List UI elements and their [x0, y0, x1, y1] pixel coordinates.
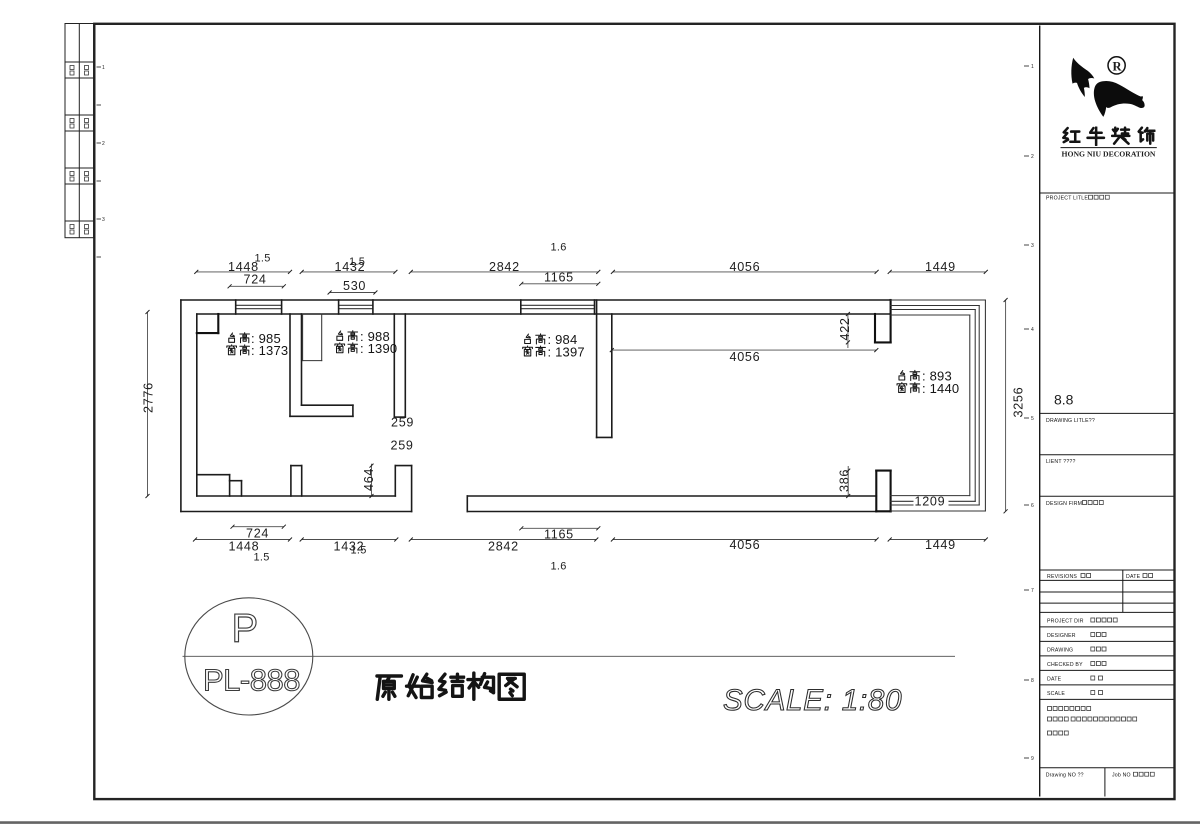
svg-text:DESIGNER: DESIGNER — [1047, 633, 1076, 639]
svg-text:1209: 1209 — [915, 495, 946, 509]
svg-text:1: 1 — [1031, 64, 1034, 70]
svg-text:Job NO: Job NO — [1112, 773, 1131, 779]
svg-text:DRAWING LITLE??: DRAWING LITLE?? — [1046, 418, 1095, 424]
svg-text:2: 2 — [1031, 154, 1034, 160]
svg-text:DATE: DATE — [1047, 676, 1062, 682]
svg-text:R: R — [1113, 60, 1123, 74]
svg-text:1.5: 1.5 — [255, 253, 271, 265]
svg-text:HONG NIU DECORATION: HONG NIU DECORATION — [1062, 149, 1157, 158]
svg-text:1449: 1449 — [925, 260, 956, 274]
svg-text:2842: 2842 — [489, 260, 520, 274]
svg-text:Drawing NO ??: Drawing NO ?? — [1046, 773, 1084, 779]
svg-text:CHECKED BY: CHECKED BY — [1047, 662, 1083, 668]
svg-text:7: 7 — [1031, 588, 1034, 594]
svg-text:8: 8 — [1031, 678, 1034, 684]
svg-text:LIENT ????: LIENT ???? — [1046, 459, 1076, 465]
svg-text:1.6: 1.6 — [551, 242, 567, 254]
svg-text:1.5: 1.5 — [349, 256, 365, 268]
svg-text:: 1390: : 1390 — [360, 341, 397, 356]
svg-text:5: 5 — [1031, 416, 1034, 422]
svg-text:DATE: DATE — [1126, 574, 1141, 580]
svg-text:259: 259 — [391, 439, 414, 453]
svg-text:1449: 1449 — [925, 538, 956, 552]
svg-text:9: 9 — [1031, 756, 1034, 762]
svg-text:530: 530 — [343, 279, 366, 293]
svg-text:2: 2 — [102, 141, 105, 147]
svg-text:4056: 4056 — [730, 538, 761, 552]
svg-text:386: 386 — [838, 469, 852, 492]
svg-text:422: 422 — [838, 317, 852, 340]
svg-text:SCALE: 1:80: SCALE: 1:80 — [723, 684, 902, 717]
svg-text:DESIGN FIRM: DESIGN FIRM — [1046, 501, 1082, 507]
svg-text:464: 464 — [362, 468, 376, 491]
svg-text:DRAWING: DRAWING — [1047, 647, 1073, 653]
svg-text:SCALE: SCALE — [1047, 691, 1065, 697]
svg-text:8.8: 8.8 — [1054, 392, 1074, 408]
svg-text:PL-888: PL-888 — [203, 663, 300, 698]
svg-text:724: 724 — [244, 273, 267, 287]
svg-text:4056: 4056 — [730, 350, 761, 364]
svg-text:: 1397: : 1397 — [548, 344, 585, 359]
svg-text:4: 4 — [1031, 327, 1034, 333]
svg-text:3: 3 — [1031, 243, 1034, 249]
svg-text:1: 1 — [102, 65, 105, 71]
svg-text:1165: 1165 — [544, 270, 574, 284]
svg-text:: 1373: : 1373 — [251, 343, 288, 358]
svg-text:259: 259 — [391, 416, 414, 430]
svg-text:2842: 2842 — [488, 540, 519, 554]
svg-text:1.5: 1.5 — [351, 545, 367, 557]
svg-text:1.6: 1.6 — [551, 561, 567, 573]
svg-text:REVISIONS: REVISIONS — [1047, 574, 1077, 580]
svg-text:1.5: 1.5 — [254, 552, 270, 564]
svg-text:724: 724 — [246, 527, 269, 541]
svg-text:1165: 1165 — [544, 528, 574, 542]
svg-text:PROJECT LITLE: PROJECT LITLE — [1046, 196, 1088, 202]
svg-text:4056: 4056 — [730, 260, 761, 274]
svg-text:6: 6 — [1031, 503, 1034, 509]
svg-text:3: 3 — [102, 217, 105, 223]
svg-text:2776: 2776 — [142, 382, 156, 413]
svg-text:PROJECT DIR: PROJECT DIR — [1047, 618, 1084, 624]
svg-text:3256: 3256 — [1012, 387, 1026, 418]
svg-text:: 1440: : 1440 — [922, 381, 959, 396]
svg-text:P: P — [232, 607, 259, 651]
